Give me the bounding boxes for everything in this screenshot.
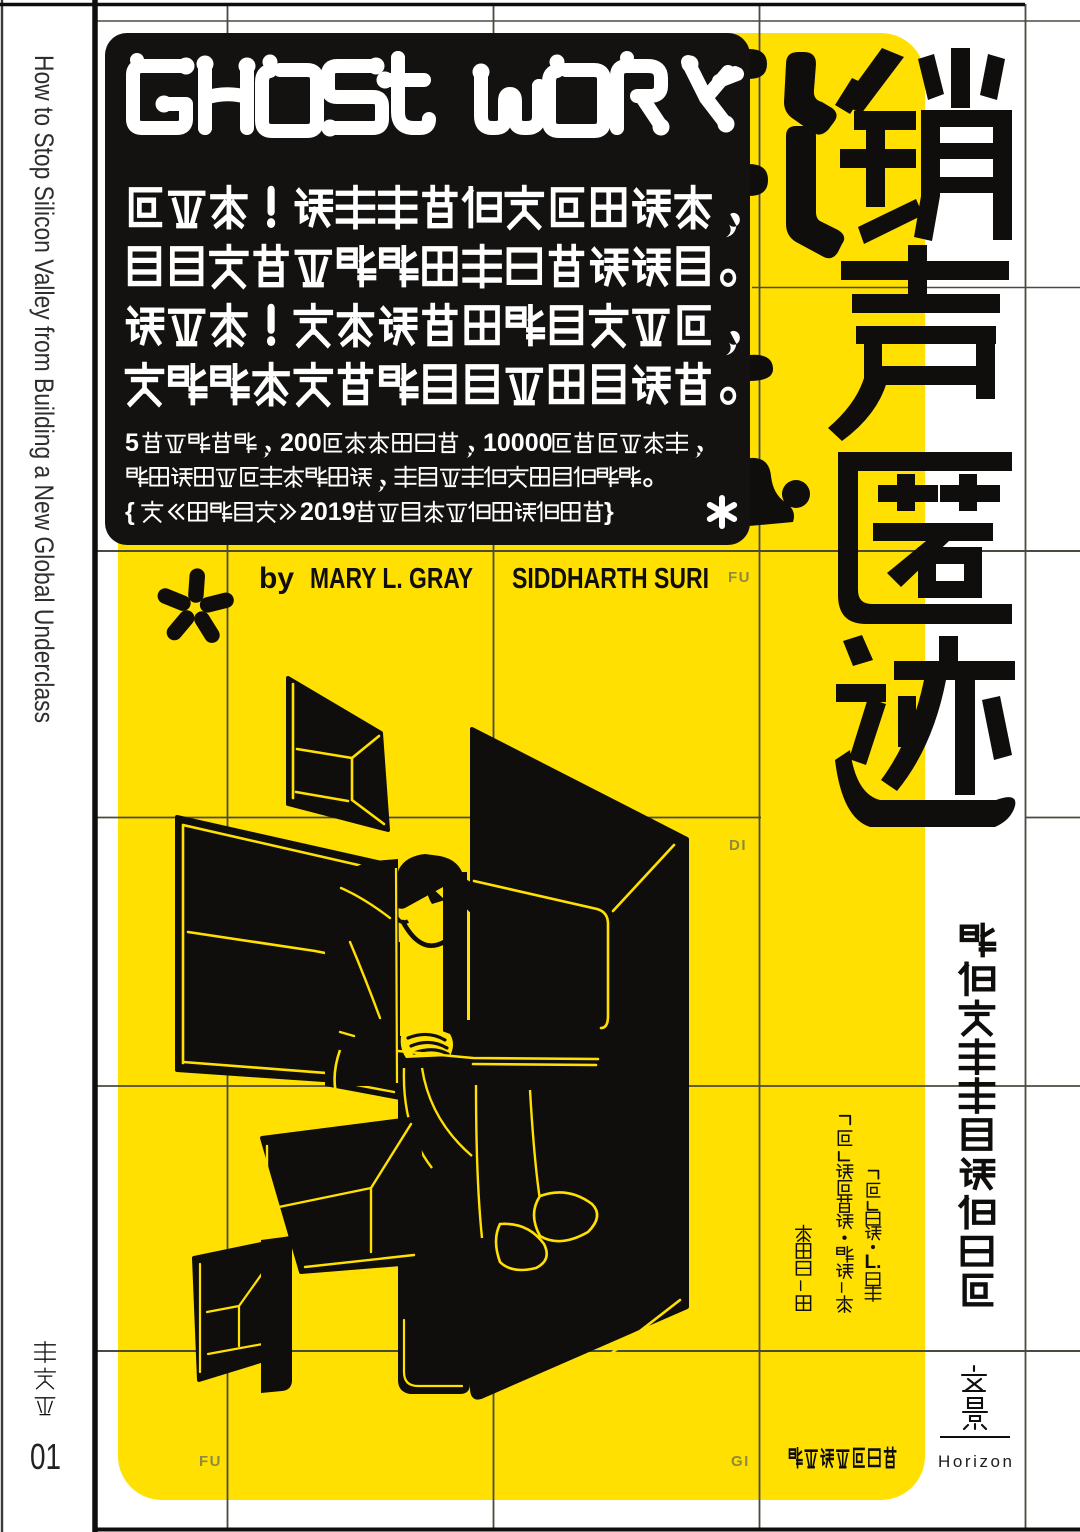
svg-text:by: by bbox=[259, 562, 294, 595]
svg-text:MARY L. GRAY: MARY L. GRAY bbox=[310, 563, 473, 595]
svg-text:SIDDHARTH SURI: SIDDHARTH SURI bbox=[512, 563, 709, 595]
svg-text:}: } bbox=[604, 498, 614, 526]
svg-text:{: { bbox=[125, 498, 135, 526]
svg-text:GI: GI bbox=[731, 1453, 750, 1470]
svg-text:FU: FU bbox=[728, 569, 751, 586]
svg-text:10000: 10000 bbox=[483, 429, 553, 457]
svg-text:5: 5 bbox=[125, 429, 139, 457]
svg-text:How to Stop Silicon Valley fro: How to Stop Silicon Valley from Building… bbox=[29, 55, 59, 723]
svg-text:DI: DI bbox=[729, 837, 747, 854]
svg-text:FU: FU bbox=[199, 1453, 222, 1470]
svg-text:2019: 2019 bbox=[300, 498, 356, 526]
svg-text:200: 200 bbox=[280, 429, 322, 457]
svg-text:L.: L. bbox=[865, 1252, 882, 1273]
svg-text:01: 01 bbox=[30, 1436, 61, 1477]
